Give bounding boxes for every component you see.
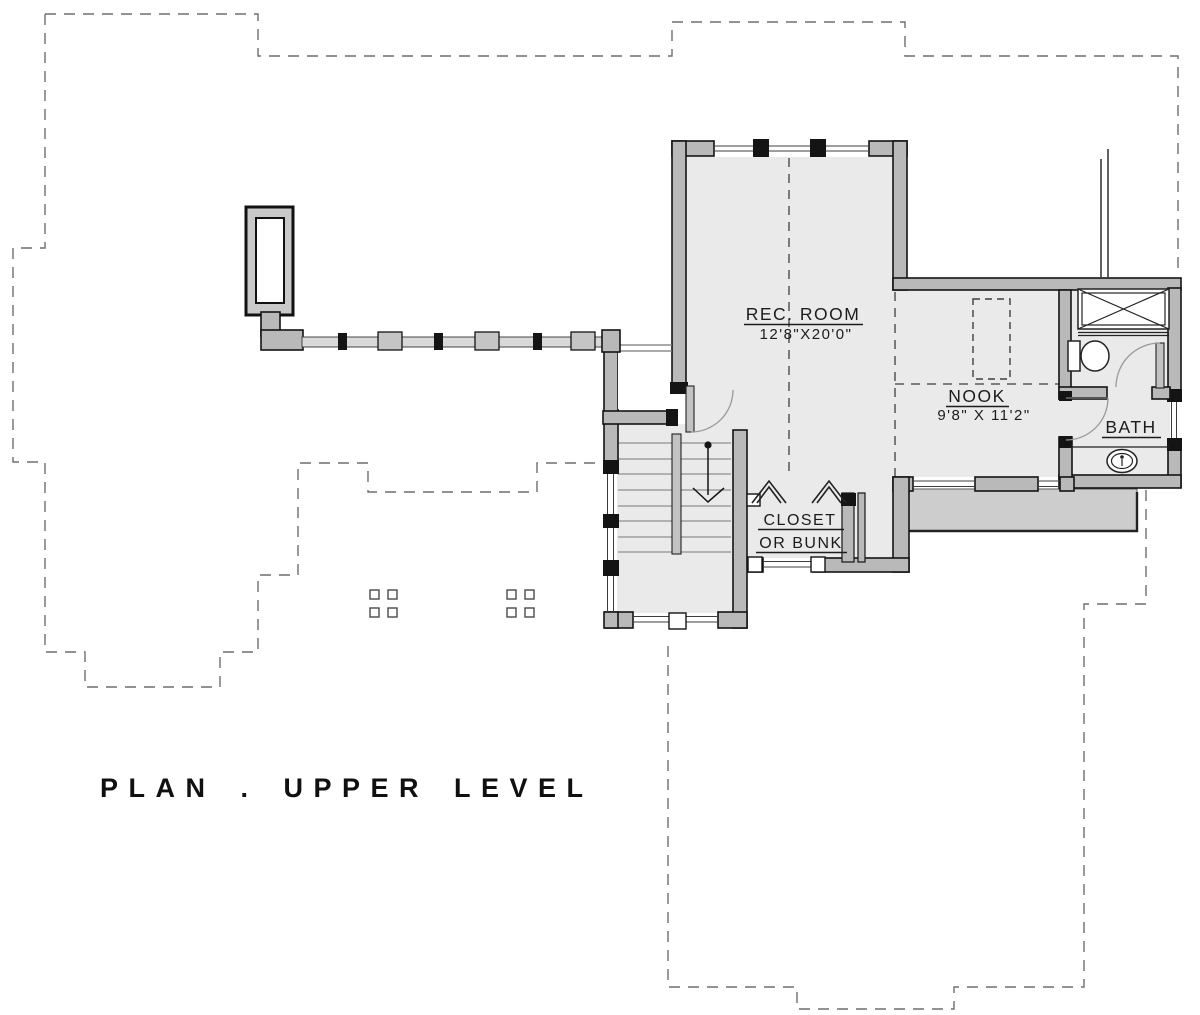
loft-railing-part	[475, 332, 499, 350]
toilet-door-jamb-wall	[1152, 387, 1170, 399]
closet-bottom-wall-part	[811, 557, 825, 572]
sink-icon-part	[1120, 455, 1124, 459]
porch-post-squares	[370, 590, 534, 617]
stair-left-wall-part	[604, 332, 618, 473]
chimney-part	[261, 330, 303, 350]
dashed-outline-left	[13, 14, 603, 687]
bath-right-wall-part	[1167, 438, 1182, 451]
porch-post-squares-part	[370, 590, 379, 599]
open-to-below-void	[618, 352, 671, 409]
loft-railing-part	[533, 333, 542, 350]
nook-bottom-wall-part	[975, 477, 1038, 491]
toilet-icon	[1068, 341, 1109, 371]
stair-right-wall	[733, 430, 747, 628]
floor-plan-drawing: REC. ROOM 12'8"X20'0" NOOK 9'8" X 11'2" …	[0, 0, 1200, 1015]
chimney	[246, 207, 303, 350]
floor-plan-page: REC. ROOM 12'8"X20'0" NOOK 9'8" X 11'2" …	[0, 0, 1200, 1015]
closet-label-line2: OR BUNK	[759, 535, 842, 552]
closet-label-line1: CLOSET	[763, 512, 836, 529]
rec-room-dims: 12'8"X20'0"	[760, 326, 853, 343]
loft-railing	[302, 330, 620, 352]
stair-hall-top-wall	[603, 411, 676, 424]
rec-room-top-wall-part	[753, 139, 769, 157]
toilet-icon-part	[1081, 341, 1109, 371]
lower-roof-deck	[909, 489, 1137, 531]
closet-right-wall-2	[858, 493, 865, 562]
walls-part	[1059, 436, 1072, 448]
chimney-part	[256, 218, 284, 303]
stair-left-wall-part	[604, 612, 618, 628]
closet-bottom-wall-part	[748, 557, 762, 572]
toilet-room-door-part	[1156, 343, 1164, 388]
rec-room-label: REC. ROOM	[746, 304, 861, 324]
porch-post-squares-part	[525, 590, 534, 599]
loft-railing-part	[378, 332, 402, 350]
walls-part	[666, 409, 678, 426]
porch-post-squares-part	[507, 608, 516, 617]
nook-top-wall	[893, 278, 1181, 290]
rec-room-top-wall	[672, 139, 907, 157]
stair-center-rail	[672, 434, 681, 554]
stair-left-wall-part	[603, 514, 619, 528]
plan-title: PLAN . UPPER LEVEL	[100, 773, 594, 803]
loft-railing-part	[338, 333, 347, 350]
railing-end-post	[602, 330, 620, 352]
stair-direction-arrow-part	[704, 441, 711, 448]
dashed-outline-top	[45, 14, 1178, 272]
porch-post-squares-part	[370, 608, 379, 617]
shower-icon	[1078, 289, 1169, 336]
nook-dims: 9'8" X 11'2"	[937, 407, 1030, 424]
porch-post-squares-part	[388, 608, 397, 617]
porch-post-squares-part	[507, 590, 516, 599]
stair-left-wall	[603, 332, 619, 628]
loft-railing-part	[434, 333, 443, 350]
toilet-icon-part	[1068, 341, 1080, 371]
stair-left-wall-part	[603, 460, 619, 474]
stair-left-wall-part	[603, 560, 619, 576]
stair-bottom-wall-part	[669, 613, 686, 629]
roof-lines	[1101, 149, 1108, 278]
nook-bottom-wall-part	[1060, 477, 1074, 491]
rec-room-top-wall-part	[810, 139, 826, 157]
bath-label: BATH	[1105, 417, 1156, 437]
nook-label: NOOK	[948, 386, 1006, 406]
loft-railing-part	[302, 337, 608, 347]
walls-part	[670, 382, 688, 394]
porch-post-squares-part	[388, 590, 397, 599]
porch-post-squares-part	[525, 608, 534, 617]
closet-bottom-wall	[735, 557, 909, 572]
bath-bottom-wall	[1059, 475, 1181, 488]
loft-railing-part	[571, 332, 595, 350]
bath-right-wall-part	[1168, 288, 1181, 401]
stair-bottom-wall-part	[718, 612, 747, 628]
rec-room-right-wall	[893, 141, 907, 290]
rec-room-door-part	[686, 386, 694, 432]
walls-part	[1059, 391, 1072, 401]
rec-room-left-wall	[672, 141, 686, 392]
stair-bottom-wall	[605, 612, 747, 629]
